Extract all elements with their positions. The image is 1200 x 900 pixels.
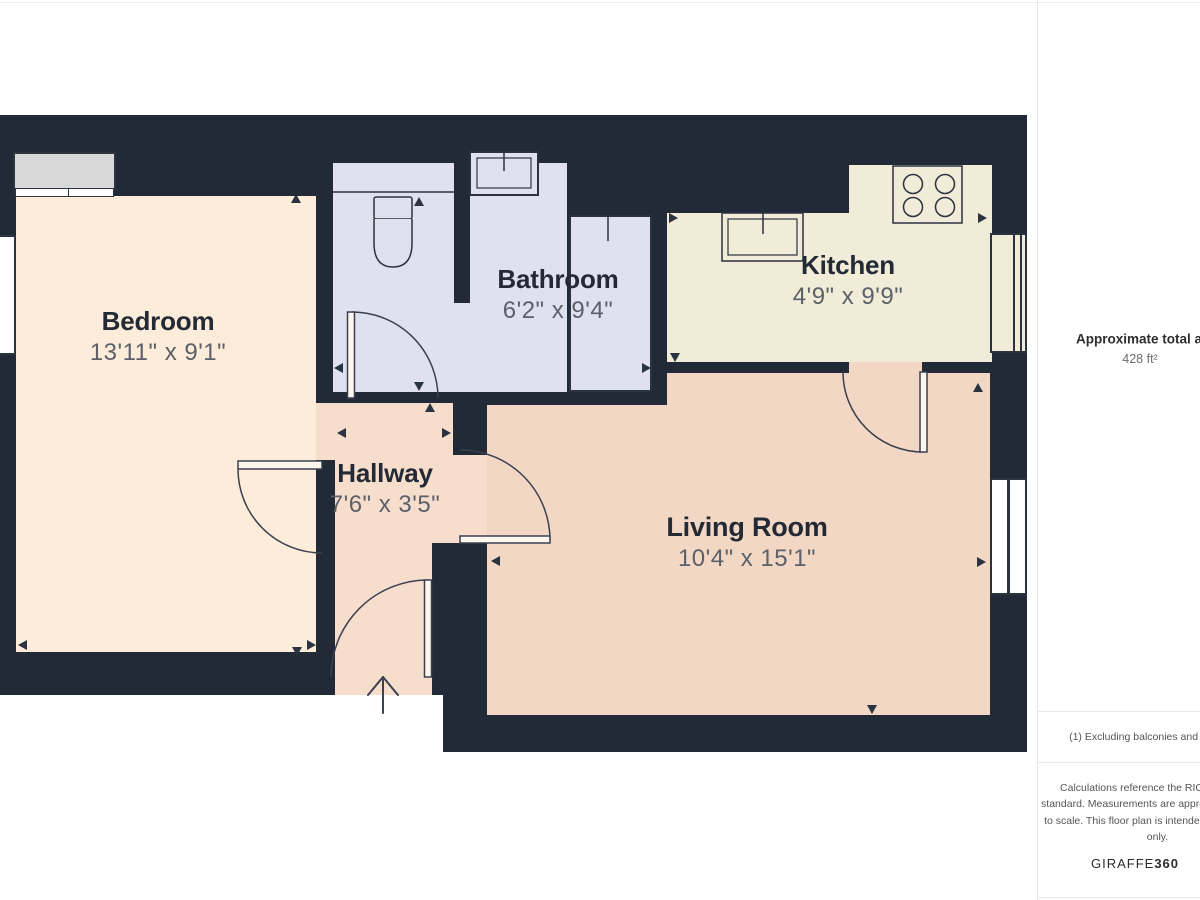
sidebar-rule: [1038, 897, 1200, 898]
hallway-floor: [316, 403, 453, 460]
window-frame-line: [1013, 235, 1015, 351]
kitchen-label: Kitchen 4'9" x 9'9": [698, 250, 998, 314]
sidebar-divider: [1037, 0, 1038, 900]
bathroom-name: Bathroom: [408, 264, 708, 294]
wardrobe-door-divider: [68, 189, 69, 196]
wardrobe: [13, 152, 116, 190]
bedroom-name: Bedroom: [8, 306, 308, 336]
total-area-value: 428 ft²: [1040, 352, 1200, 366]
floorplan-page: Bedroom 13'11" x 9'1" Bathroom 6'2" x 9'…: [0, 0, 1200, 900]
living-room-name: Living Room: [597, 512, 897, 542]
top-hairline: [0, 2, 1200, 3]
total-area-label: Approximate total area(1): [1040, 331, 1200, 347]
kitchen-floor-upper: [849, 165, 992, 213]
sidebar-rule: [1038, 711, 1200, 712]
living-room-floor-upper: [667, 373, 990, 405]
disclaimer-text: Calculations reference the RICS IPMS 3C …: [1040, 780, 1200, 845]
window-frame-line: [1020, 235, 1022, 351]
area-footnote: (1) Excluding balconies and terraces: [1040, 731, 1200, 743]
giraffe360-logo: GIRAFFE360: [1040, 856, 1200, 871]
hallway-label: Hallway 7'6" x 3'5": [235, 458, 535, 522]
window-frame-line: [1007, 480, 1010, 593]
brand-name: GIRAFFE: [1091, 856, 1154, 871]
total-area-text: Approximate total area: [1076, 332, 1200, 347]
hallway-name: Hallway: [235, 458, 535, 488]
living-room-label: Living Room 10'4" x 15'1": [597, 512, 897, 576]
wardrobe-sliding-track: [15, 188, 114, 197]
hallway-floor-entrance: [335, 543, 432, 695]
kitchen-dimensions: 4'9" x 9'9": [698, 280, 998, 314]
kitchen-doorway-floor: [849, 362, 922, 374]
bathroom-dimensions: 6'2" x 9'4": [408, 294, 708, 328]
kitchen-name: Kitchen: [698, 250, 998, 280]
living-room-window: [990, 478, 1027, 595]
hallway-dimensions: 7'6" x 3'5": [235, 488, 535, 522]
living-room-dimensions: 10'4" x 15'1": [597, 542, 897, 576]
brand-suffix: 360: [1154, 856, 1179, 871]
bathroom-label: Bathroom 6'2" x 9'4": [408, 264, 708, 328]
sidebar-rule: [1038, 762, 1200, 763]
bedroom-floor: [16, 196, 316, 652]
bedroom-label: Bedroom 13'11" x 9'1": [8, 306, 308, 370]
bedroom-dimensions: 13'11" x 9'1": [8, 336, 308, 370]
